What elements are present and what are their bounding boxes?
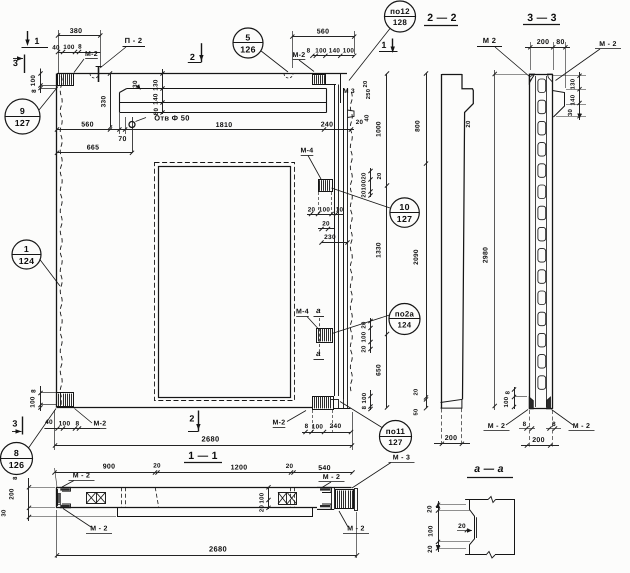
svg-text:650: 650 (376, 364, 383, 376)
svg-text:200: 200 (537, 39, 550, 46)
svg-text:20: 20 (153, 463, 161, 470)
svg-text:800: 800 (415, 120, 422, 132)
svg-text:20: 20 (361, 345, 368, 353)
svg-text:200: 200 (9, 488, 16, 500)
svg-text:560: 560 (317, 29, 330, 36)
svg-text:100: 100 (361, 179, 368, 190)
svg-text:по11: по11 (386, 427, 406, 436)
svg-text:8: 8 (31, 389, 38, 393)
svg-text:100: 100 (30, 75, 37, 87)
svg-text:20: 20 (427, 545, 434, 553)
svg-text:8: 8 (523, 421, 527, 428)
svg-text:20: 20 (308, 207, 316, 214)
svg-text:126: 126 (240, 44, 256, 54)
svg-text:М - 2: М - 2 (347, 526, 364, 533)
svg-text:128: 128 (393, 18, 407, 27)
svg-text:5: 5 (245, 33, 250, 43)
svg-text:8: 8 (12, 476, 19, 480)
svg-text:665: 665 (87, 145, 100, 152)
svg-text:8: 8 (305, 423, 309, 430)
svg-text:140: 140 (153, 93, 160, 105)
svg-text:100: 100 (30, 396, 37, 408)
svg-text:20: 20 (361, 172, 368, 180)
svg-text:100: 100 (315, 48, 327, 55)
svg-text:8: 8 (307, 48, 311, 55)
svg-text:2: 2 (189, 414, 194, 424)
svg-text:40: 40 (52, 45, 60, 52)
svg-text:100: 100 (312, 424, 324, 431)
svg-text:2 — 2: 2 — 2 (427, 12, 457, 24)
svg-text:1: 1 (381, 40, 386, 50)
svg-text:20: 20 (286, 463, 294, 470)
svg-text:560: 560 (81, 122, 94, 129)
svg-text:100: 100 (343, 48, 355, 55)
svg-text:3 — 3: 3 — 3 (527, 12, 557, 24)
svg-text:1: 1 (34, 36, 39, 46)
svg-text:М - 2: М - 2 (488, 423, 505, 430)
svg-text:200: 200 (445, 435, 458, 442)
svg-text:20: 20 (458, 523, 466, 530)
svg-text:10: 10 (399, 202, 409, 212)
svg-text:140: 140 (329, 48, 341, 55)
svg-text:М - 2: М - 2 (573, 423, 590, 430)
svg-text:2680: 2680 (202, 435, 220, 444)
svg-text:124: 124 (398, 320, 412, 329)
svg-text:М-2: М-2 (293, 52, 306, 59)
svg-text:20: 20 (362, 80, 369, 87)
svg-text:а: а (316, 349, 321, 358)
svg-text:900: 900 (103, 464, 116, 471)
svg-text:М-4: М-4 (301, 148, 314, 155)
svg-text:50: 50 (413, 408, 420, 415)
svg-text:1330: 1330 (376, 242, 383, 258)
svg-text:540: 540 (318, 465, 331, 472)
svg-text:100: 100 (361, 331, 368, 342)
svg-text:М-2: М-2 (94, 421, 107, 428)
svg-text:100: 100 (63, 44, 75, 51)
svg-text:20: 20 (427, 505, 434, 513)
svg-text:30: 30 (567, 109, 574, 117)
svg-text:127: 127 (15, 118, 31, 128)
svg-text:130: 130 (570, 78, 577, 89)
svg-text:8: 8 (14, 448, 19, 458)
svg-text:9: 9 (20, 106, 25, 116)
svg-text:40: 40 (364, 114, 371, 122)
svg-text:200: 200 (532, 437, 545, 444)
svg-text:2980: 2980 (483, 247, 490, 263)
svg-text:1: 1 (24, 244, 29, 254)
svg-text:1200: 1200 (231, 465, 248, 472)
svg-text:130: 130 (153, 79, 160, 91)
svg-text:М-4: М-4 (296, 309, 309, 316)
svg-text:100: 100 (361, 392, 368, 403)
svg-text:М - 3: М - 3 (393, 455, 410, 462)
svg-text:8: 8 (31, 89, 38, 93)
svg-text:100: 100 (319, 207, 331, 214)
svg-text:3: 3 (12, 419, 17, 429)
svg-text:20: 20 (356, 119, 364, 126)
svg-text:124: 124 (19, 256, 35, 266)
svg-text:М - 2: М - 2 (599, 41, 616, 48)
svg-text:М - 2: М - 2 (90, 526, 107, 533)
svg-text:М - 2: М - 2 (73, 473, 90, 480)
svg-text:1810: 1810 (216, 122, 233, 129)
svg-text:8: 8 (78, 44, 82, 51)
svg-text:20: 20 (259, 505, 266, 513)
svg-text:Отв Ф 50: Отв Ф 50 (154, 114, 189, 123)
svg-text:20: 20 (361, 190, 368, 198)
svg-text:8: 8 (505, 390, 512, 394)
svg-text:240: 240 (330, 423, 342, 430)
svg-text:20: 20 (322, 221, 330, 228)
svg-text:80: 80 (556, 39, 564, 46)
svg-text:140: 140 (570, 94, 577, 105)
svg-text:по12: по12 (390, 7, 410, 16)
svg-text:240: 240 (321, 122, 334, 129)
svg-text:20: 20 (413, 388, 420, 395)
svg-text:1 — 1: 1 — 1 (188, 450, 218, 462)
svg-text:М-2: М-2 (85, 51, 98, 58)
svg-text:2: 2 (190, 52, 195, 62)
svg-text:8: 8 (361, 405, 368, 409)
svg-text:М 3: М 3 (343, 88, 355, 95)
svg-text:230: 230 (324, 234, 336, 241)
svg-text:20: 20 (465, 120, 472, 128)
svg-text:100: 100 (503, 396, 510, 407)
svg-text:70: 70 (118, 136, 126, 143)
svg-text:100: 100 (259, 492, 266, 503)
svg-text:380: 380 (70, 28, 83, 35)
svg-text:127: 127 (388, 438, 402, 447)
svg-text:330: 330 (101, 96, 108, 108)
svg-text:П - 2: П - 2 (125, 36, 143, 45)
svg-text:8: 8 (76, 421, 80, 428)
svg-text:30: 30 (1, 509, 8, 517)
svg-text:127: 127 (397, 214, 413, 224)
svg-text:2680: 2680 (209, 545, 227, 554)
svg-text:1000: 1000 (376, 121, 383, 137)
svg-text:2090: 2090 (413, 249, 420, 265)
svg-text:М-2: М-2 (273, 420, 286, 427)
svg-text:126: 126 (9, 460, 25, 470)
svg-text:20: 20 (376, 172, 383, 179)
svg-text:250: 250 (365, 89, 372, 100)
svg-text:М 2: М 2 (483, 36, 496, 45)
svg-text:по2а: по2а (395, 310, 415, 319)
svg-text:М - 2: М - 2 (323, 474, 340, 481)
svg-text:а — а: а — а (474, 463, 504, 475)
svg-text:100: 100 (428, 525, 435, 537)
svg-text:а: а (316, 306, 321, 315)
